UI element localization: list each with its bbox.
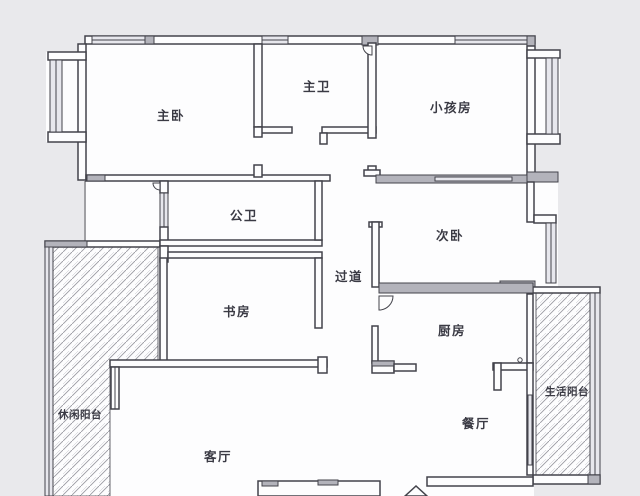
room-label-second-bedroom: 次卧 <box>436 228 464 243</box>
room-label-master-bathroom: 主卫 <box>303 79 331 94</box>
room-label-living-room: 客厅 <box>203 449 232 464</box>
room-label-study: 书房 <box>223 304 251 319</box>
bay-window-master-bedroom <box>48 52 86 60</box>
kitchen-counter <box>394 364 416 371</box>
room-label-kids-room: 小孩房 <box>429 100 472 115</box>
room-label-public-bathroom: 公卫 <box>230 209 258 223</box>
room-label-leisure-balcony: 休闲阳台 <box>57 408 102 421</box>
sliding-door-master-bedroom <box>87 175 105 181</box>
room-label-utility-balcony: 生活阳台 <box>545 385 589 398</box>
room-label-hallway: 过道 <box>335 269 363 284</box>
floor-plan: 主卧 主卫 小孩房 公卫 次卧 过道 书房 厨房 休闲阳台 客厅 餐厅 生活阳台 <box>0 0 640 496</box>
floor-plan-canvas: 主卧 主卫 小孩房 公卫 次卧 过道 书房 厨房 休闲阳台 客厅 餐厅 生活阳台 <box>0 0 640 496</box>
utility-balcony-deck <box>536 293 592 475</box>
room-label-master-bedroom: 主卧 <box>157 108 185 123</box>
door-leaf-master-bathroom <box>320 133 327 144</box>
bay-window-kids-room <box>527 50 560 58</box>
room-label-kitchen: 厨房 <box>438 323 466 338</box>
room-label-dining-room: 餐厅 <box>461 416 490 431</box>
